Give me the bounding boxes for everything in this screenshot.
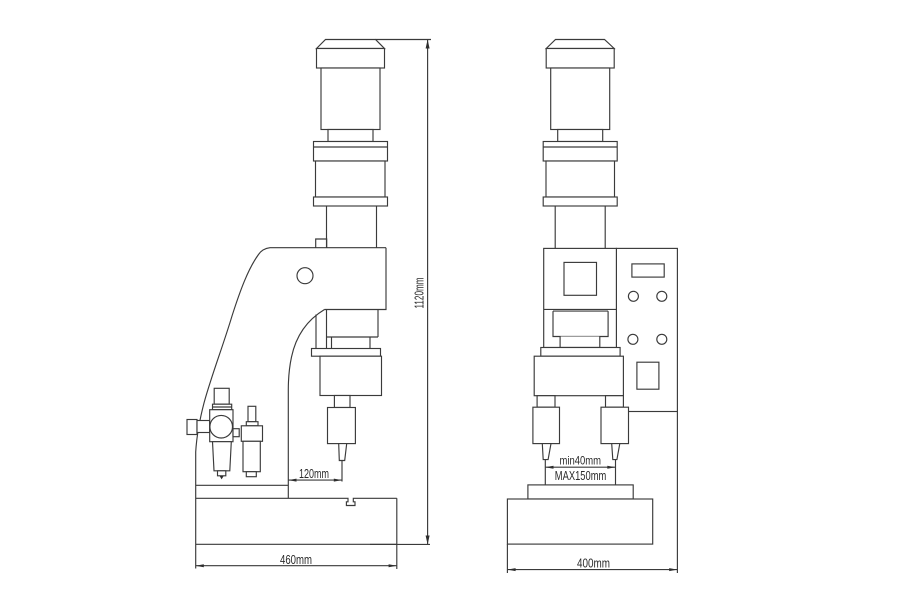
- svg-text:1120mm: 1120mm: [413, 278, 427, 309]
- svg-text:120mm: 120mm: [299, 467, 329, 481]
- svg-text:400mm: 400mm: [577, 557, 610, 571]
- svg-text:min40mm: min40mm: [560, 454, 602, 468]
- svg-text:460mm: 460mm: [280, 553, 312, 567]
- svg-text:MAX150mm: MAX150mm: [555, 469, 607, 483]
